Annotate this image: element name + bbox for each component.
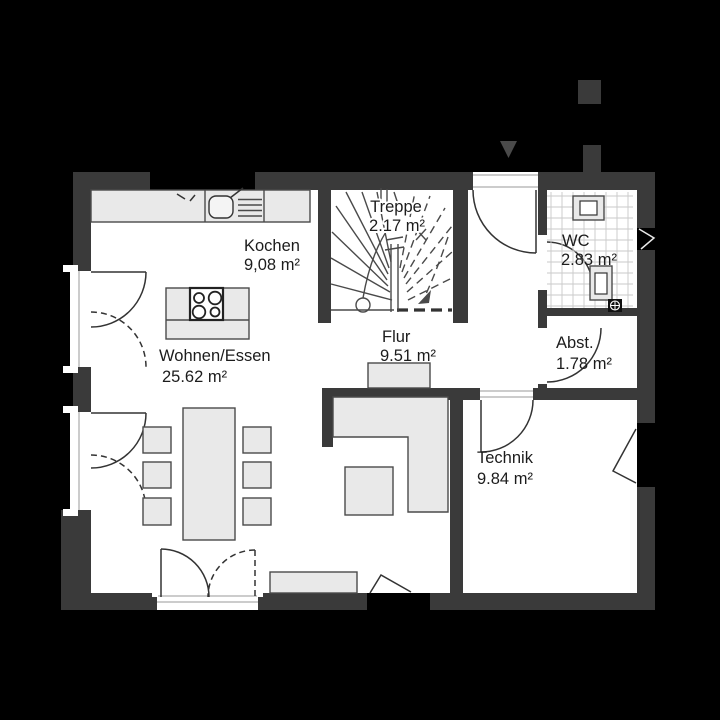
entrance-arrow-icon [500,141,517,158]
wc-abst-divider-wall [538,308,637,316]
room-label-kochen: Kochen [244,237,300,255]
coffee-table [345,467,393,515]
wall-right-upper [637,172,655,228]
window-jamb-cap [63,406,78,413]
wall-top-middle [255,172,473,190]
wall-bottom-middle [258,593,367,610]
chair [243,498,271,525]
chimney-block-upper [578,80,601,104]
room-area-abstellraum: 1.78 m² [556,355,612,373]
abst-wall-left-stub-top [538,316,547,328]
sideboard-flur [368,363,430,388]
sideboard-bottom [270,572,357,593]
wohnen-wall-stub [322,388,333,447]
chimney-block-lower [583,145,601,172]
stair-wall-left [318,190,331,323]
dining-set [143,408,271,540]
wc-window-flap-icon [639,229,654,249]
toilet-bowl-icon [595,273,607,294]
room-area-technik: 9.84 m² [477,470,533,488]
chair [143,498,171,525]
door-jamb-cap [257,591,263,597]
floor-drain-icon [608,299,622,312]
kitchen-counter [91,190,310,222]
wall-left-lower [61,510,91,610]
wc-wall-left-upper [538,190,547,235]
kitchen-sink-icon [209,196,233,218]
stair-wall-right [453,190,468,323]
room-label-flur: Flur [382,328,411,346]
room-area-wohnen-essen: 25.62 m² [162,368,228,386]
chair [143,462,171,488]
abst-wall-bottom [533,388,637,400]
wall-left-upper [73,172,91,271]
chair [243,462,271,488]
wall-left-middle [73,367,91,412]
room-label-treppe: Treppe [370,198,422,216]
wall-right-lower [637,487,655,610]
window-jamb-cap [63,509,78,516]
room-area-flur: 9.51 m² [380,347,436,365]
window-jamb-cap [63,366,78,373]
window-opening-left-2 [70,412,91,510]
chair [243,427,271,453]
dining-table [183,408,235,540]
wc-sink-basin-icon [580,201,597,215]
wall-right-middle [637,250,655,423]
chair [143,427,171,453]
room-label-wc: WC [562,232,590,250]
floor-plan-page: Kochen 9,08 m² Treppe 2.17 m² WC 2.83 m²… [0,0,720,720]
window-opening-left-1 [70,271,91,367]
room-area-kochen: 9,08 m² [244,256,300,274]
room-area-treppe: 2.17 m² [369,217,425,235]
room-label-technik: Technik [477,449,534,467]
wall-bottom-left [91,593,157,610]
room-label-wohnen-essen: Wohnen/Essen [159,347,271,365]
room-label-abstellraum: Abst. [556,334,594,352]
window-jamb-cap [63,265,78,272]
floor-plan-canvas: Kochen 9,08 m² Treppe 2.17 m² WC 2.83 m²… [0,0,720,720]
flur-technik-wall [450,388,463,610]
door-jamb-cap [152,591,158,597]
room-area-wc: 2.83 m² [561,251,617,269]
